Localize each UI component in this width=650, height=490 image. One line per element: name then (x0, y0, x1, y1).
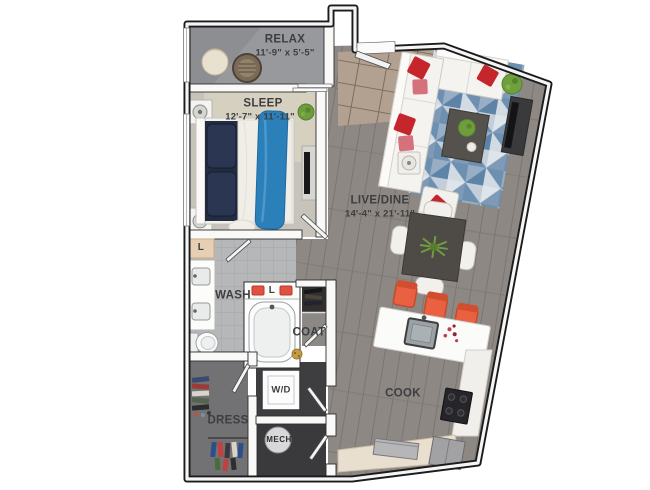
room-label-dress: DRESS (207, 415, 248, 427)
vanity (189, 260, 215, 330)
label-linen-closet: L (198, 243, 204, 253)
toilet (190, 333, 218, 354)
bedroom-plant (298, 104, 314, 120)
room-label-live-dine: LIVE/DINE (351, 195, 410, 207)
room-label-wd: W/D (271, 385, 290, 395)
floorplan-canvas: RELAX 11'-9" x 5'-5" SLEEP 12'-7" x 11'-… (0, 0, 650, 490)
room-label-mech: MECH (266, 436, 292, 444)
side-table (398, 152, 420, 174)
windows (184, 28, 190, 226)
towel-red-2 (280, 286, 292, 295)
room-label-sleep: SLEEP (243, 98, 282, 110)
room-dims-sleep: 12'-7" x 11'-11" (225, 112, 295, 122)
sofa-pillow-rose-1 (412, 79, 428, 95)
sofa-pillow-rose-2 (398, 135, 414, 151)
towel-red-1 (252, 286, 264, 295)
room-label-coat: COAT (293, 327, 326, 339)
room-dims-relax: 11'-9" x 5'-5" (255, 48, 314, 58)
stove (440, 388, 472, 424)
balcony-sliding-door (293, 84, 332, 92)
corner-plant (502, 74, 522, 94)
tub-faucet (270, 305, 275, 310)
label-linen-shelf: L (269, 286, 275, 296)
balcony-chair (202, 49, 228, 75)
room-label-relax: RELAX (265, 34, 305, 46)
bed (196, 111, 294, 234)
entry-opening (357, 42, 395, 55)
room-dims-live-dine: 14'-4" x 21'-11" (345, 209, 415, 219)
bedroom-tv-console (302, 146, 316, 200)
hallway-floor (296, 239, 332, 282)
room-label-cook: COOK (385, 388, 421, 400)
room-label-wash: WASH (215, 290, 251, 302)
hall-decor-gold (292, 349, 302, 359)
floorplan-drawing (0, 0, 650, 490)
